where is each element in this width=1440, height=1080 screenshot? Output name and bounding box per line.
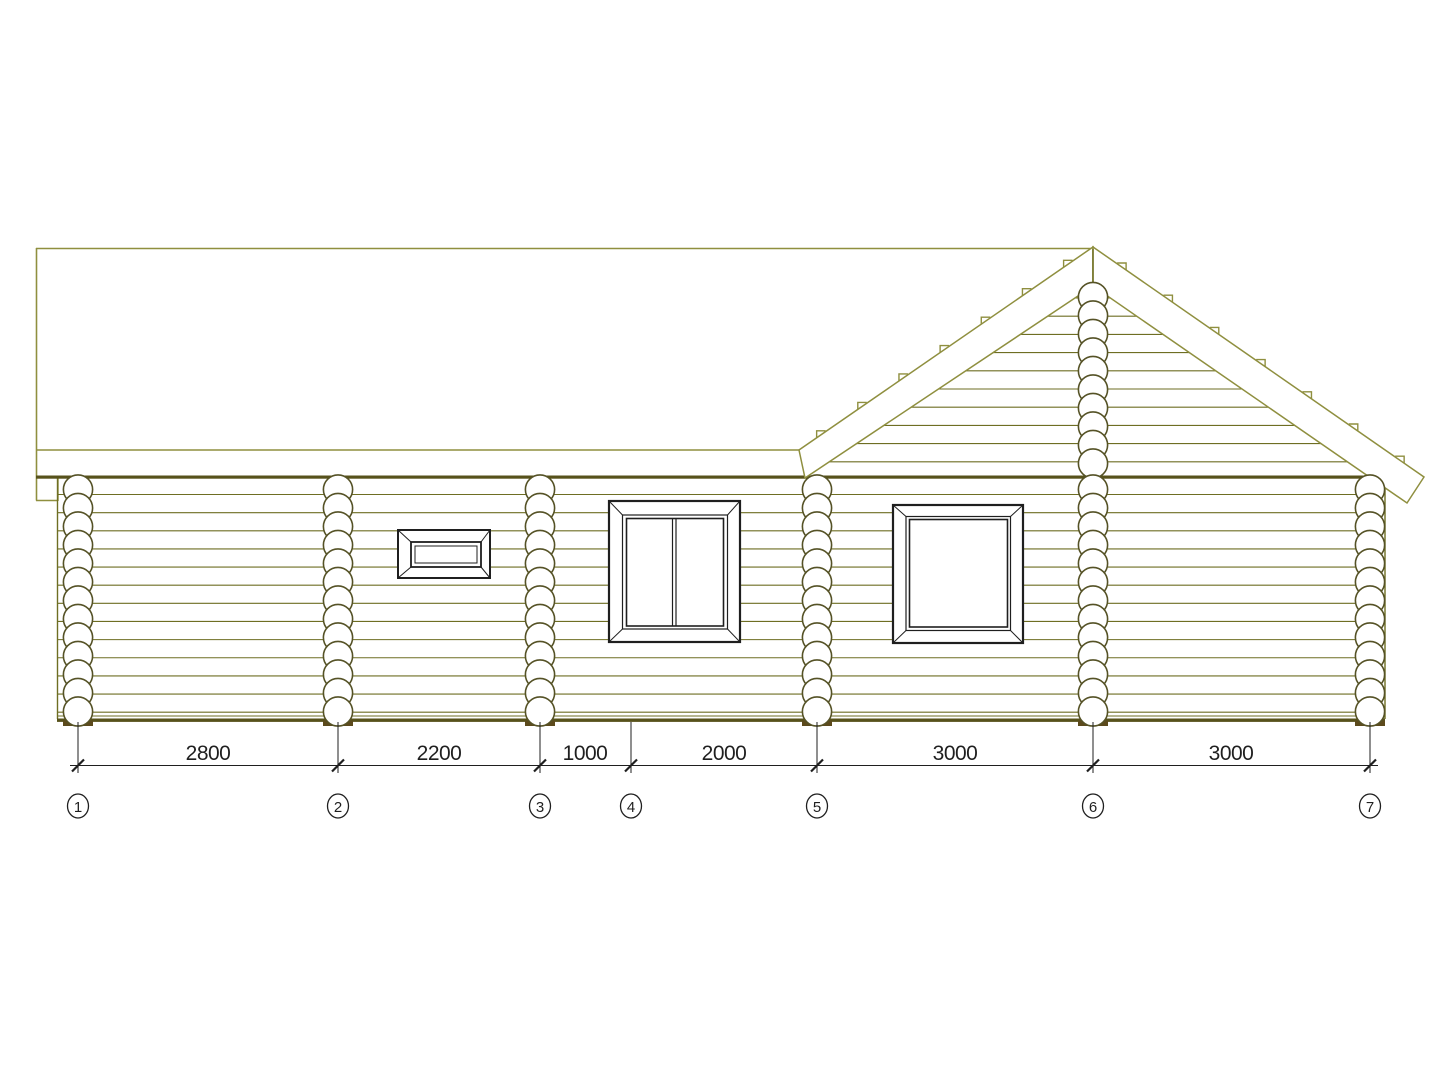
window-single	[893, 505, 1023, 643]
axis-number: 3	[536, 799, 544, 816]
axis-number: 5	[813, 799, 821, 816]
log-end	[1355, 697, 1384, 726]
wall-top-beam	[36, 476, 1385, 479]
window-small	[398, 530, 490, 578]
log-end	[525, 697, 554, 726]
dimension-label: 3000	[933, 742, 978, 765]
log-end	[323, 697, 352, 726]
axis-number: 2	[334, 799, 342, 816]
window-double	[609, 501, 740, 642]
axis-number: 6	[1089, 799, 1097, 816]
drawing-canvas: 2800 2200 1000 2000 3000 3000 1 2 3 4 5 …	[0, 0, 1440, 1080]
roof-boards	[799, 247, 1424, 503]
log-end	[802, 697, 831, 726]
right-rafter-board	[1093, 247, 1424, 503]
axis-bubbles: 1 2 3 4 5 6 7	[68, 794, 1381, 818]
dimension-label: 2000	[702, 742, 747, 765]
axis-number: 4	[627, 799, 635, 816]
log-end	[63, 697, 92, 726]
window-inner-frame	[627, 519, 724, 627]
dimensions: 2800 2200 1000 2000 3000 3000	[70, 722, 1378, 773]
log-end	[1078, 697, 1107, 726]
dimension-label: 3000	[1209, 742, 1254, 765]
wall-sill	[57, 719, 1385, 722]
elevation-drawing: 2800 2200 1000 2000 3000 3000 1 2 3 4 5 …	[0, 0, 1440, 1080]
window-inner-frame	[910, 520, 1008, 628]
dimension-label: 1000	[563, 742, 608, 765]
axis-number: 1	[74, 799, 82, 816]
axis-number: 7	[1366, 799, 1374, 816]
log-end	[1078, 449, 1107, 478]
dimension-label: 2800	[186, 742, 231, 765]
window-inner-frame	[415, 546, 477, 563]
dimension-label: 2200	[417, 742, 462, 765]
